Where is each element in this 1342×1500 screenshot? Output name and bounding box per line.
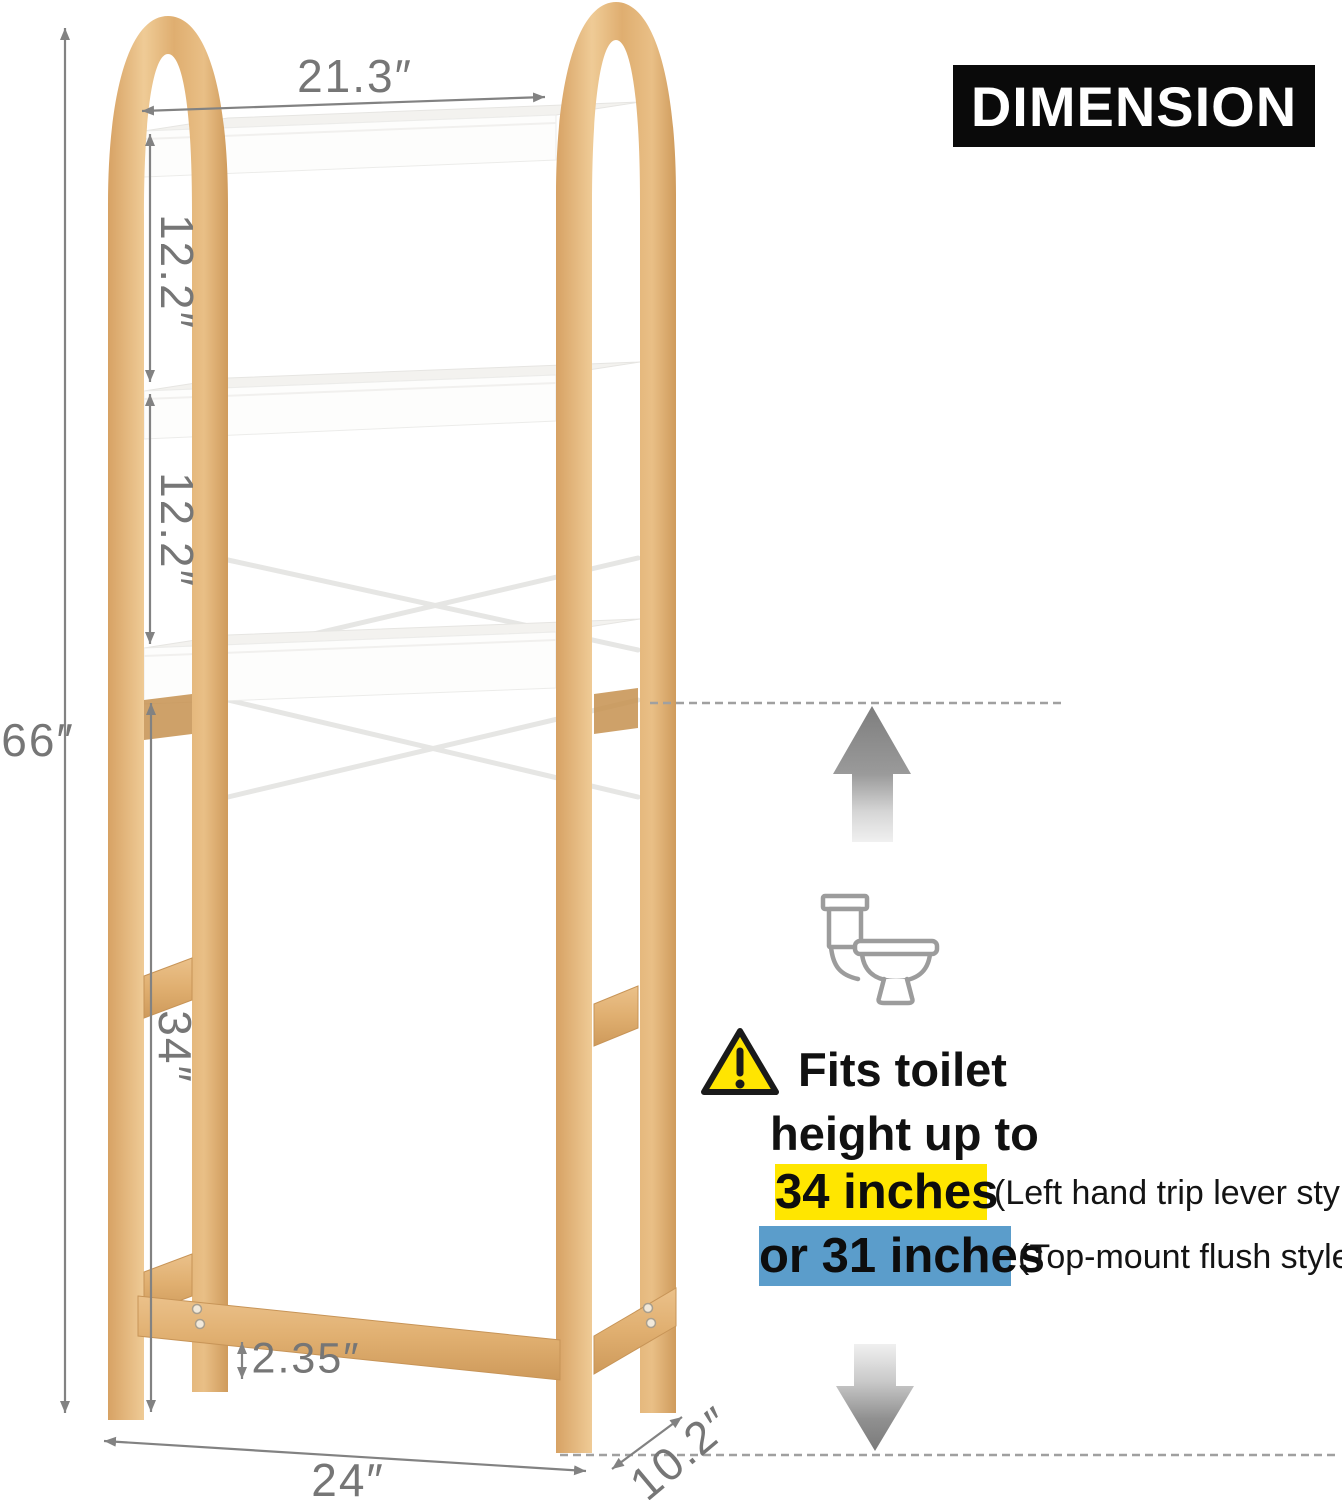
right-mid-rail	[594, 986, 638, 1046]
base-width-label: 24″	[311, 1453, 384, 1500]
foot-height-label: 2.35″	[252, 1335, 361, 1384]
dimension-banner: DIMENSION	[953, 65, 1315, 147]
clearance-height-label: 34″	[148, 1010, 202, 1083]
toilet-icon	[823, 896, 937, 1003]
fits-toilet-line1: Fits toilet	[770, 1042, 1035, 1097]
height-option-34in: 34 inches	[775, 1164, 987, 1220]
warning-icon	[704, 1031, 776, 1092]
height-option-34in-note: (Left hand trip lever style)	[994, 1164, 1342, 1220]
height-option-31in-note: (Top-mount flush style)	[1018, 1226, 1342, 1286]
shelf-gap-lower-label: 12.2″	[150, 472, 204, 588]
overall-height-label: 66″	[1, 713, 74, 767]
product-dimension-infographic: 21.3″ 12.2″ 12.2″ 66″ 34″ 2.35″ 24″ 10.2…	[0, 0, 1342, 1500]
shelf-gap-upper-label: 12.2″	[150, 214, 204, 330]
fits-toilet-line2: height up to	[770, 1106, 1035, 1161]
arrow-up-icon	[833, 706, 911, 842]
arrow-down-icon	[836, 1344, 914, 1451]
height-option-31in: or 31 inches	[759, 1226, 1011, 1286]
top-width-label: 21.3″	[297, 49, 413, 103]
